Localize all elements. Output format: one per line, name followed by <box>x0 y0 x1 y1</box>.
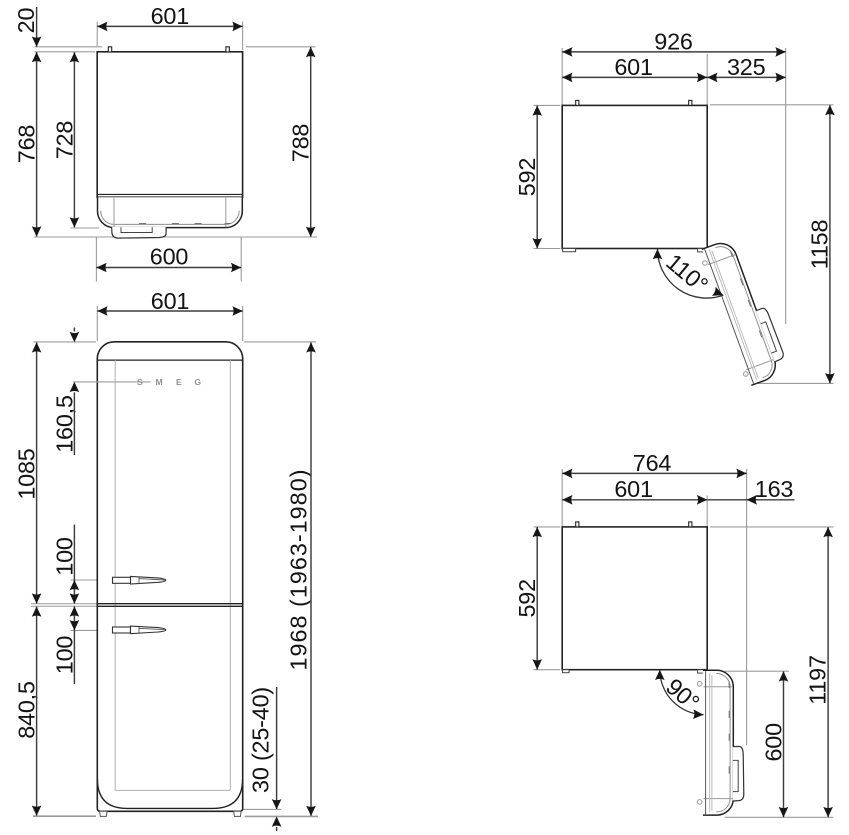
svg-text:160,5: 160,5 <box>51 395 77 453</box>
svg-text:M: M <box>156 377 163 387</box>
svg-text:1085: 1085 <box>14 448 40 499</box>
svg-text:G: G <box>194 377 201 387</box>
svg-text:163: 163 <box>755 476 793 502</box>
svg-text:728: 728 <box>51 121 77 159</box>
svg-text:600: 600 <box>761 723 787 762</box>
svg-text:601: 601 <box>151 3 189 29</box>
svg-text:768: 768 <box>14 125 40 163</box>
svg-text:601: 601 <box>151 288 189 314</box>
svg-text:20: 20 <box>13 8 39 34</box>
svg-text:840,5: 840,5 <box>14 681 40 739</box>
svg-text:1158: 1158 <box>806 220 832 270</box>
svg-text:926: 926 <box>654 28 692 54</box>
svg-text:592: 592 <box>514 579 540 617</box>
svg-text:E: E <box>176 377 182 387</box>
svg-text:100: 100 <box>51 537 77 576</box>
svg-text:325: 325 <box>727 54 766 80</box>
svg-text:601: 601 <box>614 476 652 502</box>
svg-text:600: 600 <box>150 244 189 270</box>
svg-text:1968 (1963-1980): 1968 (1963-1980) <box>285 469 311 671</box>
svg-text:764: 764 <box>633 450 672 476</box>
svg-text:601: 601 <box>614 54 652 80</box>
svg-text:100: 100 <box>51 636 77 675</box>
svg-text:S: S <box>137 377 143 387</box>
svg-text:592: 592 <box>514 158 540 196</box>
svg-text:788: 788 <box>288 124 314 162</box>
svg-text:1197: 1197 <box>805 655 831 705</box>
svg-text:30 (25-40): 30 (25-40) <box>248 687 274 793</box>
